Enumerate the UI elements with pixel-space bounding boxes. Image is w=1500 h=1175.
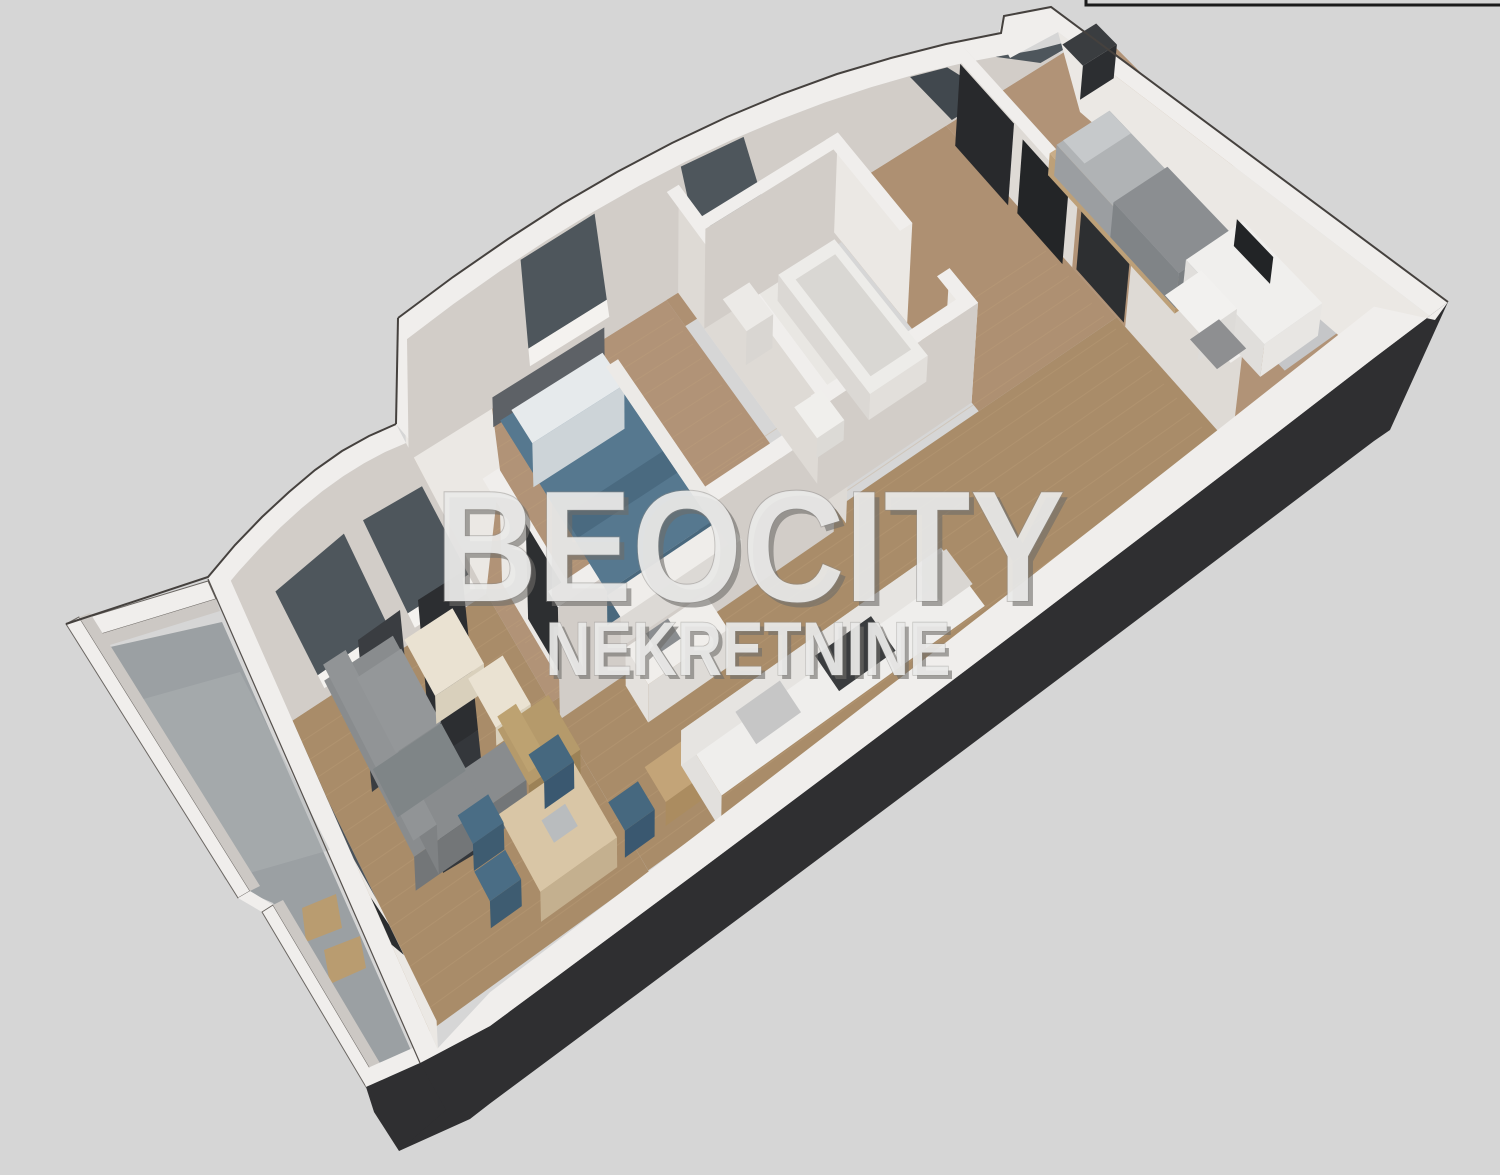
svg-text:NEKRETNINE: NEKRETNINE	[546, 607, 951, 692]
